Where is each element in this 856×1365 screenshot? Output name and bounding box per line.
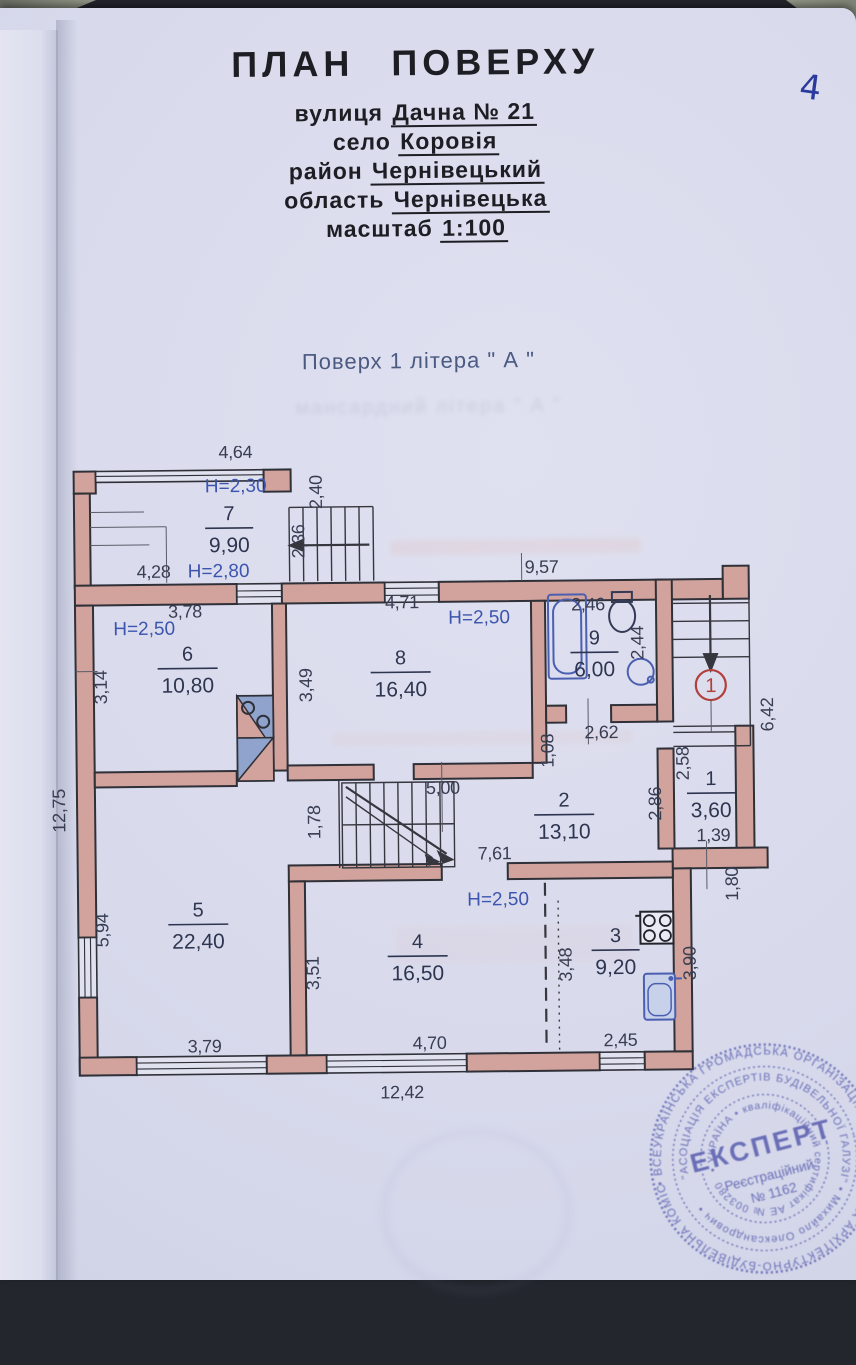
region-label: область <box>284 186 385 213</box>
plan-label: 9 <box>589 627 600 649</box>
plan-label: 1 <box>705 768 716 790</box>
plan-label: 2,44 <box>627 626 647 660</box>
plan-label: 5,00 <box>426 778 460 798</box>
svg-text:1: 1 <box>705 675 716 697</box>
header-scale-line: масштаб 1:100 <box>117 211 717 246</box>
room-label-divider <box>570 652 618 653</box>
photo-of-floor-plan-page: { "page": { "corner_number": "4" }, "hea… <box>0 0 856 1280</box>
plan-label: Н=2,30 <box>205 476 267 498</box>
plan-label: 1,78 <box>304 805 324 839</box>
village-value: Коровія <box>398 127 499 156</box>
plan-label: 6 <box>182 643 193 665</box>
plan-label: 3,60 <box>691 799 732 822</box>
plan-label: 8 <box>395 647 406 669</box>
plan-label: 2 <box>558 790 569 812</box>
floor-letter-line: Поверх 1 літера " А " <box>118 345 718 377</box>
street-value: Дачна № 21 <box>390 98 537 128</box>
plan-label: 3 <box>610 925 621 947</box>
village-label: село <box>333 128 391 155</box>
plan-label: 3,90 <box>680 946 700 980</box>
plan-label: 2,58 <box>672 746 692 780</box>
district-value: Чернівецький <box>370 156 544 186</box>
plan-label: 2,86 <box>645 786 665 820</box>
room-label-divider <box>534 814 594 815</box>
room-label-divider <box>687 793 735 794</box>
plan-label: 4 <box>412 931 423 953</box>
plan-label: 5,94 <box>92 913 112 947</box>
plan-label: 4,28 <box>137 562 171 582</box>
plan-label: 4,64 <box>218 442 252 462</box>
plan-label: 4,71 <box>385 592 419 612</box>
district-label: район <box>289 158 363 185</box>
plan-label: 6,00 <box>574 658 615 681</box>
plan-label: 4,70 <box>413 1033 447 1053</box>
plan-label: 3,79 <box>188 1036 222 1056</box>
stove-boiler-icon <box>237 696 274 781</box>
kitchen-stove-icon <box>635 911 673 943</box>
plan-label: 10,80 <box>161 674 214 698</box>
entrance-marker: 1 <box>696 670 727 733</box>
plan-label: 9,57 <box>525 557 559 577</box>
plan-label: 1,08 <box>537 733 557 767</box>
street-label: вулиця <box>294 99 383 126</box>
plan-label: 7,61 <box>478 843 512 863</box>
plan-label: 1,39 <box>696 825 730 845</box>
plan-label: 2,46 <box>571 594 605 614</box>
plan-label: 22,40 <box>172 930 225 954</box>
plan-label: 3,48 <box>556 947 576 981</box>
plan-label: 3,49 <box>296 668 316 702</box>
plan-label: Н=2,80 <box>188 561 250 583</box>
washbasin-icon <box>628 659 654 685</box>
plan-label: 5 <box>192 899 203 921</box>
plan-label: 12,75 <box>49 789 69 833</box>
scale-label: масштаб <box>326 215 433 242</box>
plan-label: 9,20 <box>595 956 636 979</box>
room-label-divider <box>388 956 448 957</box>
handwritten-page-number: 4 <box>797 67 824 109</box>
room-label-divider <box>168 924 228 925</box>
plan-label: 12,42 <box>380 1082 424 1102</box>
plan-label: 2,36 <box>288 524 308 558</box>
plan-label: 16,50 <box>391 962 444 986</box>
plan-label: 3,51 <box>303 956 323 990</box>
plan-label: 2,40 <box>306 475 326 509</box>
bleed-through-text: мансардний літера " А " <box>159 393 699 422</box>
plan-label: 13,10 <box>538 820 591 844</box>
plan-label: 16,40 <box>374 678 427 702</box>
plan-label: 6,42 <box>757 697 777 731</box>
room-label-divider <box>205 528 253 529</box>
plan-label: 7 <box>223 503 234 525</box>
scale-value: 1:100 <box>440 214 508 243</box>
plan-label: Н=2,50 <box>467 889 529 911</box>
plan-label: Н=2,50 <box>113 619 175 641</box>
region-value: Чернівецька <box>392 185 550 215</box>
room-label-divider <box>158 668 218 669</box>
plan-header: ПЛАН ПОВЕРХУ вулиця Дачна № 21 село Коро… <box>115 39 717 246</box>
plan-label: 3,14 <box>91 670 111 704</box>
plan-label: 9,90 <box>209 534 250 557</box>
page-title: ПЛАН ПОВЕРХУ <box>115 39 715 87</box>
page-content: 4 ПЛАН ПОВЕРХУ вулиця Дачна № 21 село Ко… <box>0 0 856 1284</box>
plan-label: Н=2,50 <box>448 607 510 629</box>
bleed-stamp-circle <box>378 1127 574 1297</box>
room-label-divider <box>371 672 431 673</box>
plan-label: 1,80 <box>722 867 742 901</box>
plan-label: 2,62 <box>584 722 618 742</box>
room-label-divider <box>592 950 640 951</box>
